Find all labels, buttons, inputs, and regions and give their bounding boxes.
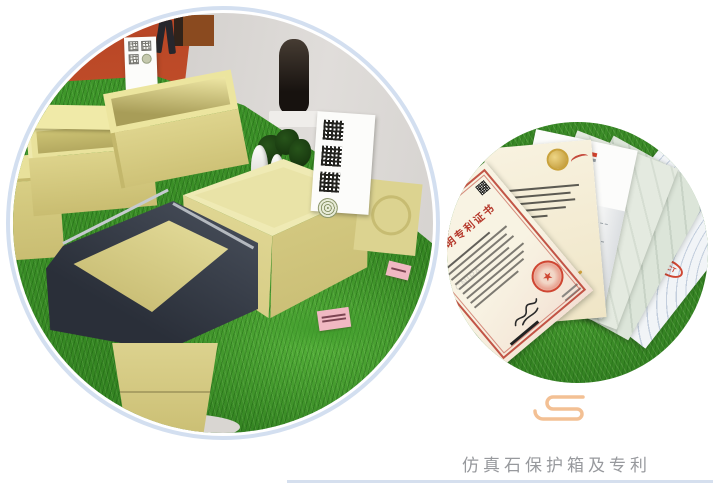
- section-caption: 仿真石保护箱及专利: [462, 451, 651, 476]
- qr-code-icon: [141, 41, 151, 51]
- cnipa-watermark: CNIPA: [453, 265, 484, 293]
- caption-underline: [287, 480, 713, 483]
- signature-mark: [507, 294, 548, 332]
- protection-box-dark-top: [46, 201, 258, 351]
- date-lines: [560, 281, 584, 304]
- round-badge-icon: [142, 54, 152, 64]
- right-photo-circle: PCT: [447, 122, 708, 383]
- qr-code-icon: [319, 171, 340, 192]
- red-seal-icon: ★: [525, 254, 570, 299]
- patent-certificate-title: 发明专利证书: [447, 186, 515, 273]
- cloud-flourish-icon: [529, 390, 595, 422]
- certificates-scene: PCT: [447, 122, 708, 383]
- dark-vase: [279, 39, 309, 115]
- vase-pedestal: [269, 111, 319, 127]
- page: PCT: [0, 0, 713, 488]
- certificate-text-lines: [447, 212, 544, 312]
- qr-code-icon: [475, 180, 490, 195]
- exhibition-scene: [13, 13, 433, 433]
- qr-code-sign-large: [311, 111, 376, 215]
- background-shelf: [174, 15, 214, 46]
- qr-code-icon: [129, 54, 139, 64]
- qr-code-icon: [128, 41, 138, 51]
- gold-medallion-icon: [546, 148, 570, 172]
- round-lid-ring: [369, 193, 413, 237]
- red-flourish: [570, 152, 590, 166]
- qr-code-icon: [321, 146, 342, 167]
- left-photo-circle: [6, 6, 440, 440]
- qr-code-icon: [323, 120, 344, 141]
